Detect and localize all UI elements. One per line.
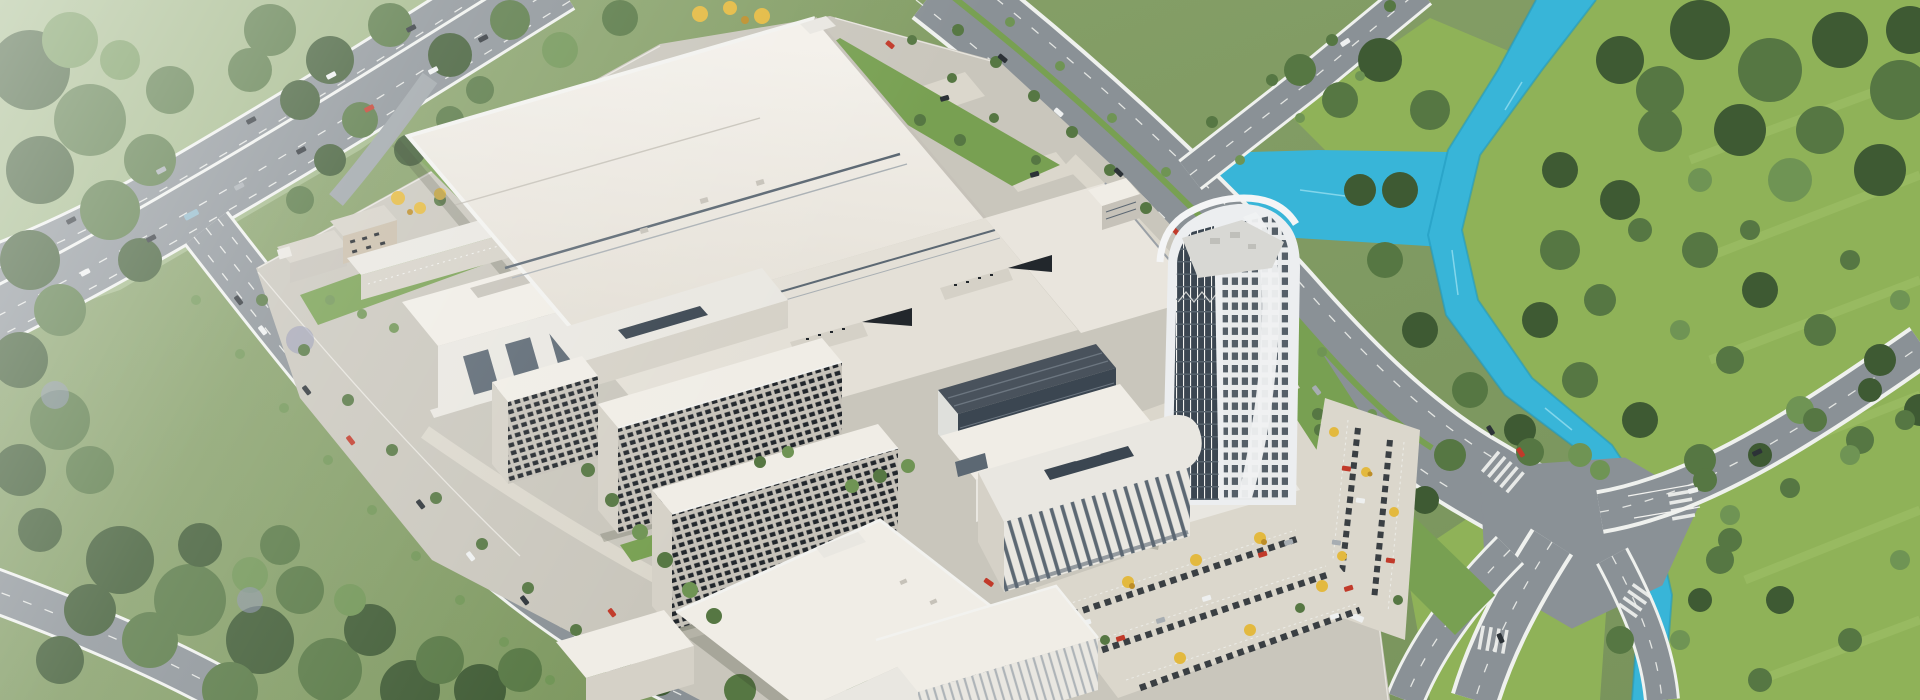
aerial-campus-rendering (0, 0, 1920, 700)
haze-overlay (0, 0, 1920, 700)
